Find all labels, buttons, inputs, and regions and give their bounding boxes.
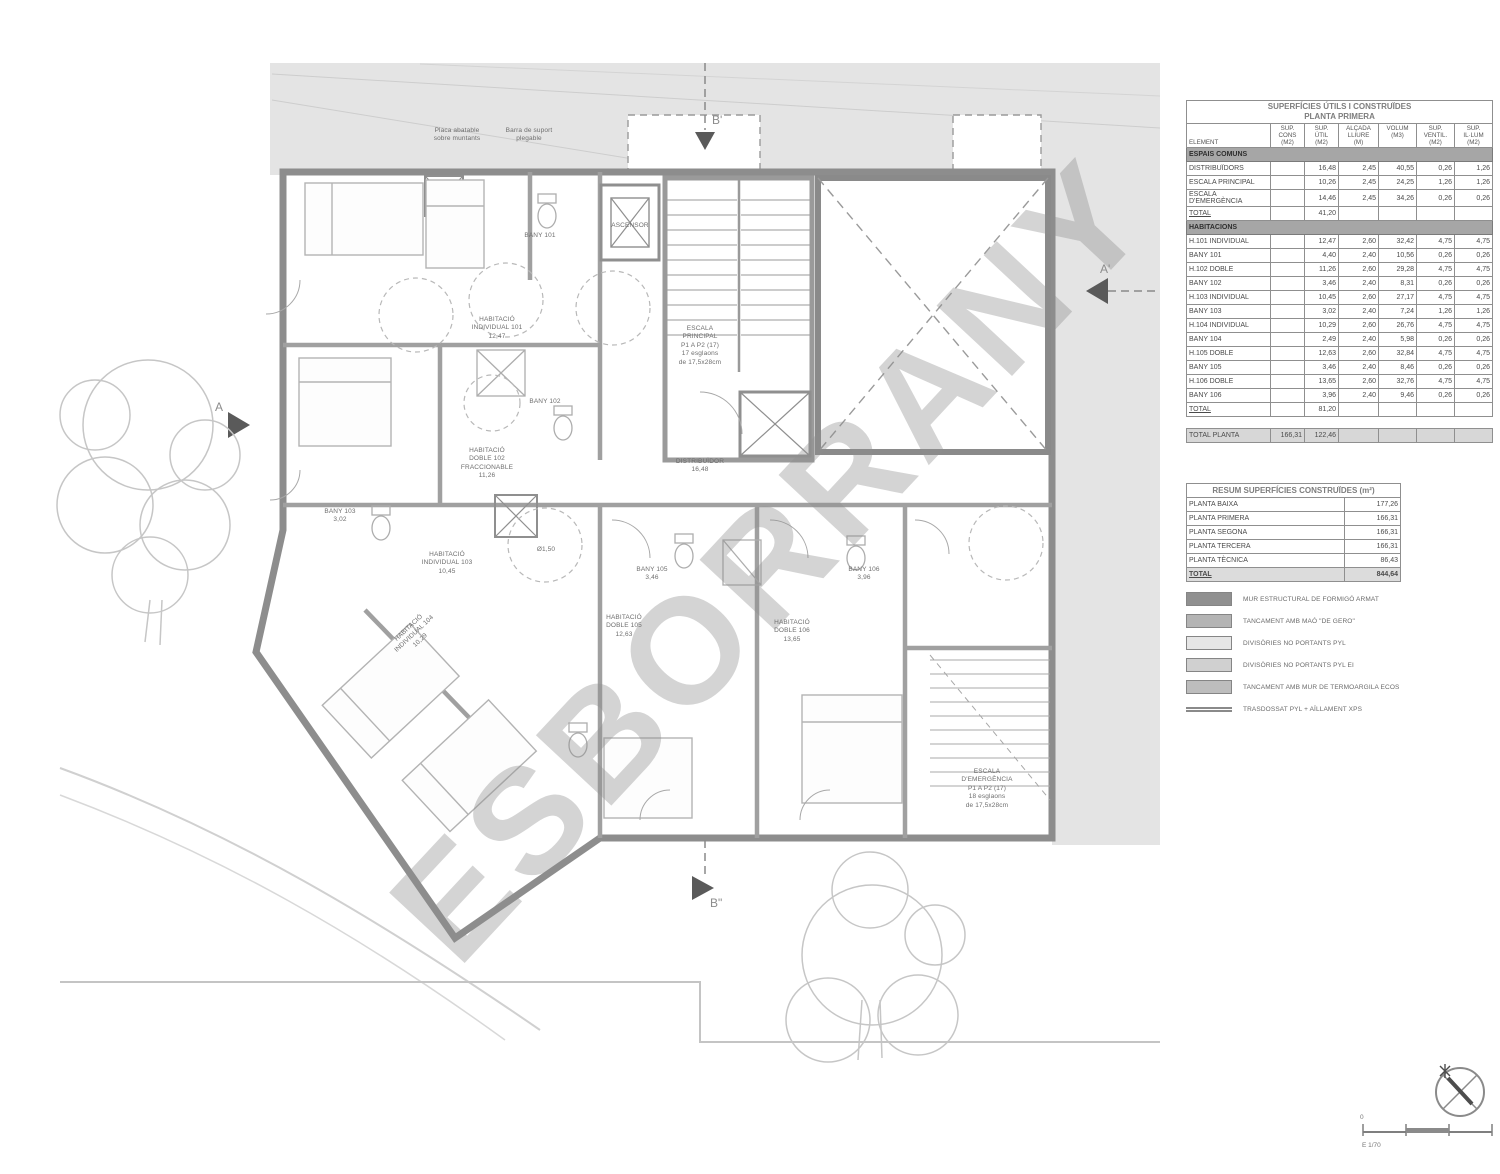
table-row bbox=[1187, 417, 1493, 429]
summary-title: RESUM SUPERFÍCIES CONSTRUÏDES (m²) bbox=[1187, 484, 1401, 498]
legend-label: TANCAMENT AMB MUR DE TERMOARGILA ECOS bbox=[1243, 684, 1400, 691]
room-label-bany101: BANY 101 bbox=[485, 232, 595, 240]
legend-swatch-partition-pyl-ei bbox=[1186, 658, 1232, 672]
table-row: PLANTA SEGONA166,31 bbox=[1187, 526, 1401, 540]
table-row: TOTAL PLANTA166,31122,46 bbox=[1187, 429, 1493, 443]
scale-zero: 0 bbox=[1360, 1114, 1364, 1121]
room-label-bany102: BANY 102 bbox=[490, 398, 600, 406]
col-sup-util: SUP. ÚTIL (M2) bbox=[1305, 124, 1339, 148]
areas-table: SUPERFÍCIES ÚTILS I CONSTRUÏDES PLANTA P… bbox=[1186, 100, 1493, 443]
scale-bar bbox=[1363, 1124, 1492, 1136]
col-sup-cons: SUP. CONS (M2) bbox=[1271, 124, 1305, 148]
table-row: DISTRIBUÏDORS16,482,4540,550,261,26 bbox=[1187, 162, 1493, 176]
table-row: H.104 INDIVIDUAL10,292,6026,764,754,75 bbox=[1187, 319, 1493, 333]
table-row: PLANTA PRIMERA166,31 bbox=[1187, 512, 1401, 526]
north-compass-icon bbox=[1436, 1064, 1484, 1116]
room-label-elevator: ASCENSOR bbox=[575, 222, 685, 230]
room-label-h105: HABITACIÓ DOBLE 105 12,63 bbox=[569, 614, 679, 639]
table-row: H.103 INDIVIDUAL10,452,6027,174,754,75 bbox=[1187, 291, 1493, 305]
void-lightwell bbox=[818, 178, 1048, 452]
legend-swatch-partition-pyl bbox=[1186, 636, 1232, 650]
tree-bottom bbox=[786, 852, 965, 1062]
table-row: BANY 1063,962,409,460,260,26 bbox=[1187, 389, 1493, 403]
table-row: H.106 DOBLE13,652,6032,764,754,75 bbox=[1187, 375, 1493, 389]
table-row: BANY 1042,492,405,980,260,26 bbox=[1187, 333, 1493, 347]
section-marker-a-prime: A' bbox=[1100, 262, 1110, 276]
legend-swatch-termoargila bbox=[1186, 680, 1232, 694]
table-row: H.102 DOBLE11,262,6029,284,754,75 bbox=[1187, 263, 1493, 277]
table-row: BANY 1033,022,407,241,261,26 bbox=[1187, 305, 1493, 319]
legend-swatch-brick-wall bbox=[1186, 614, 1232, 628]
room-label-bany105: BANY 105 3,46 bbox=[597, 566, 707, 583]
col-element: ELEMENT bbox=[1187, 124, 1271, 148]
table-row: TOTAL81,20 bbox=[1187, 403, 1493, 417]
room-label-h106: HABITACIÓ DOBLE 106 13,65 bbox=[737, 619, 847, 644]
table-row: ESCALA PRINCIPAL10,262,4524,251,261,26 bbox=[1187, 176, 1493, 190]
room-label-h101: HABITACIÓ INDIVIDUAL 101 12,47 bbox=[442, 316, 552, 341]
legend-label: DIVISÒRIES NO PORTANTS PYL bbox=[1243, 640, 1346, 647]
legend-label: TRASDOSSAT PYL + AÏLLAMENT XPS bbox=[1243, 706, 1362, 713]
col-illum: SUP. IL·LUM (M2) bbox=[1455, 124, 1493, 148]
drawing-sheet: { "watermark": "ESBORRANY", "markers": {… bbox=[0, 0, 1500, 1174]
table-row: TOTAL844,64 bbox=[1187, 568, 1401, 582]
room-label-bany106: BANY 106 3,96 bbox=[809, 566, 919, 583]
room-label-distribuidor: DISTRIBUÏDOR 16,48 bbox=[645, 458, 755, 475]
annotation-diameter: Ø1,50 bbox=[491, 546, 601, 554]
legend-swatch-lining bbox=[1186, 707, 1232, 712]
table-row: BANY 1014,402,4010,560,260,26 bbox=[1187, 249, 1493, 263]
table-row: H.101 INDIVIDUAL12,472,6032,424,754,75 bbox=[1187, 235, 1493, 249]
section-marker-b-prime: B' bbox=[712, 113, 722, 127]
col-ventil: SUP. VENTIL. (M2) bbox=[1417, 124, 1455, 148]
table-row: PLANTA TÈCNICA86,43 bbox=[1187, 554, 1401, 568]
summary-table: RESUM SUPERFÍCIES CONSTRUÏDES (m²) PLANT… bbox=[1186, 483, 1401, 582]
legend-label: MUR ESTRUCTURAL DE FORMIGÓ ARMAT bbox=[1243, 596, 1379, 603]
table-row: PLANTA BAIXA177,26 bbox=[1187, 498, 1401, 512]
room-label-bany103: BANY 103 3,02 bbox=[285, 508, 395, 525]
section-marker-b-double: B" bbox=[710, 896, 722, 910]
room-label-h103: HABITACIÓ INDIVIDUAL 103 10,45 bbox=[392, 551, 502, 576]
table-row: PLANTA TERCERA166,31 bbox=[1187, 540, 1401, 554]
table-row: BANY 1023,462,408,310,260,26 bbox=[1187, 277, 1493, 291]
tree-left bbox=[57, 360, 240, 645]
col-alcada: ALÇADA LLIURE (M) bbox=[1339, 124, 1379, 148]
col-volum: VOLUM (M3) bbox=[1379, 124, 1417, 148]
table-row: ESPAIS COMUNS bbox=[1187, 148, 1493, 162]
legend-label: TANCAMENT AMB MAÓ "DE GERO" bbox=[1243, 618, 1355, 625]
room-label-emergency-stair: ESCALA D'EMERGÈNCIA P1 A P2 (17) 18 esgl… bbox=[932, 768, 1042, 810]
table-row: TOTAL41,20 bbox=[1187, 207, 1493, 221]
table-title: SUPERFÍCIES ÚTILS I CONSTRUÏDES PLANTA P… bbox=[1187, 101, 1493, 124]
room-label-h102: HABITACIÓ DOBLE 102 FRACCIONABLE 11,26 bbox=[432, 447, 542, 481]
annotation-support-bar: Barra de suport plegable bbox=[474, 127, 584, 144]
table-row: HABITACIONS bbox=[1187, 221, 1493, 235]
table-row: H.105 DOBLE12,632,6032,844,754,75 bbox=[1187, 347, 1493, 361]
table-header-row: ELEMENT SUP. CONS (M2) SUP. ÚTIL (M2) AL… bbox=[1187, 124, 1493, 148]
table-row: BANY 1053,462,408,460,260,26 bbox=[1187, 361, 1493, 375]
legend-label: DIVISÒRIES NO PORTANTS PYL EI bbox=[1243, 662, 1354, 669]
table-row: ESCALA D'EMERGÈNCIA14,462,4534,260,260,2… bbox=[1187, 190, 1493, 207]
section-marker-a: A bbox=[215, 400, 223, 414]
scale-ratio: E 1/70 bbox=[1362, 1142, 1381, 1149]
room-label-main-stair: ESCALA PRINCIPAL P1 A P2 (17) 17 esglaon… bbox=[645, 325, 755, 367]
legend-swatch-structural-wall bbox=[1186, 592, 1232, 606]
